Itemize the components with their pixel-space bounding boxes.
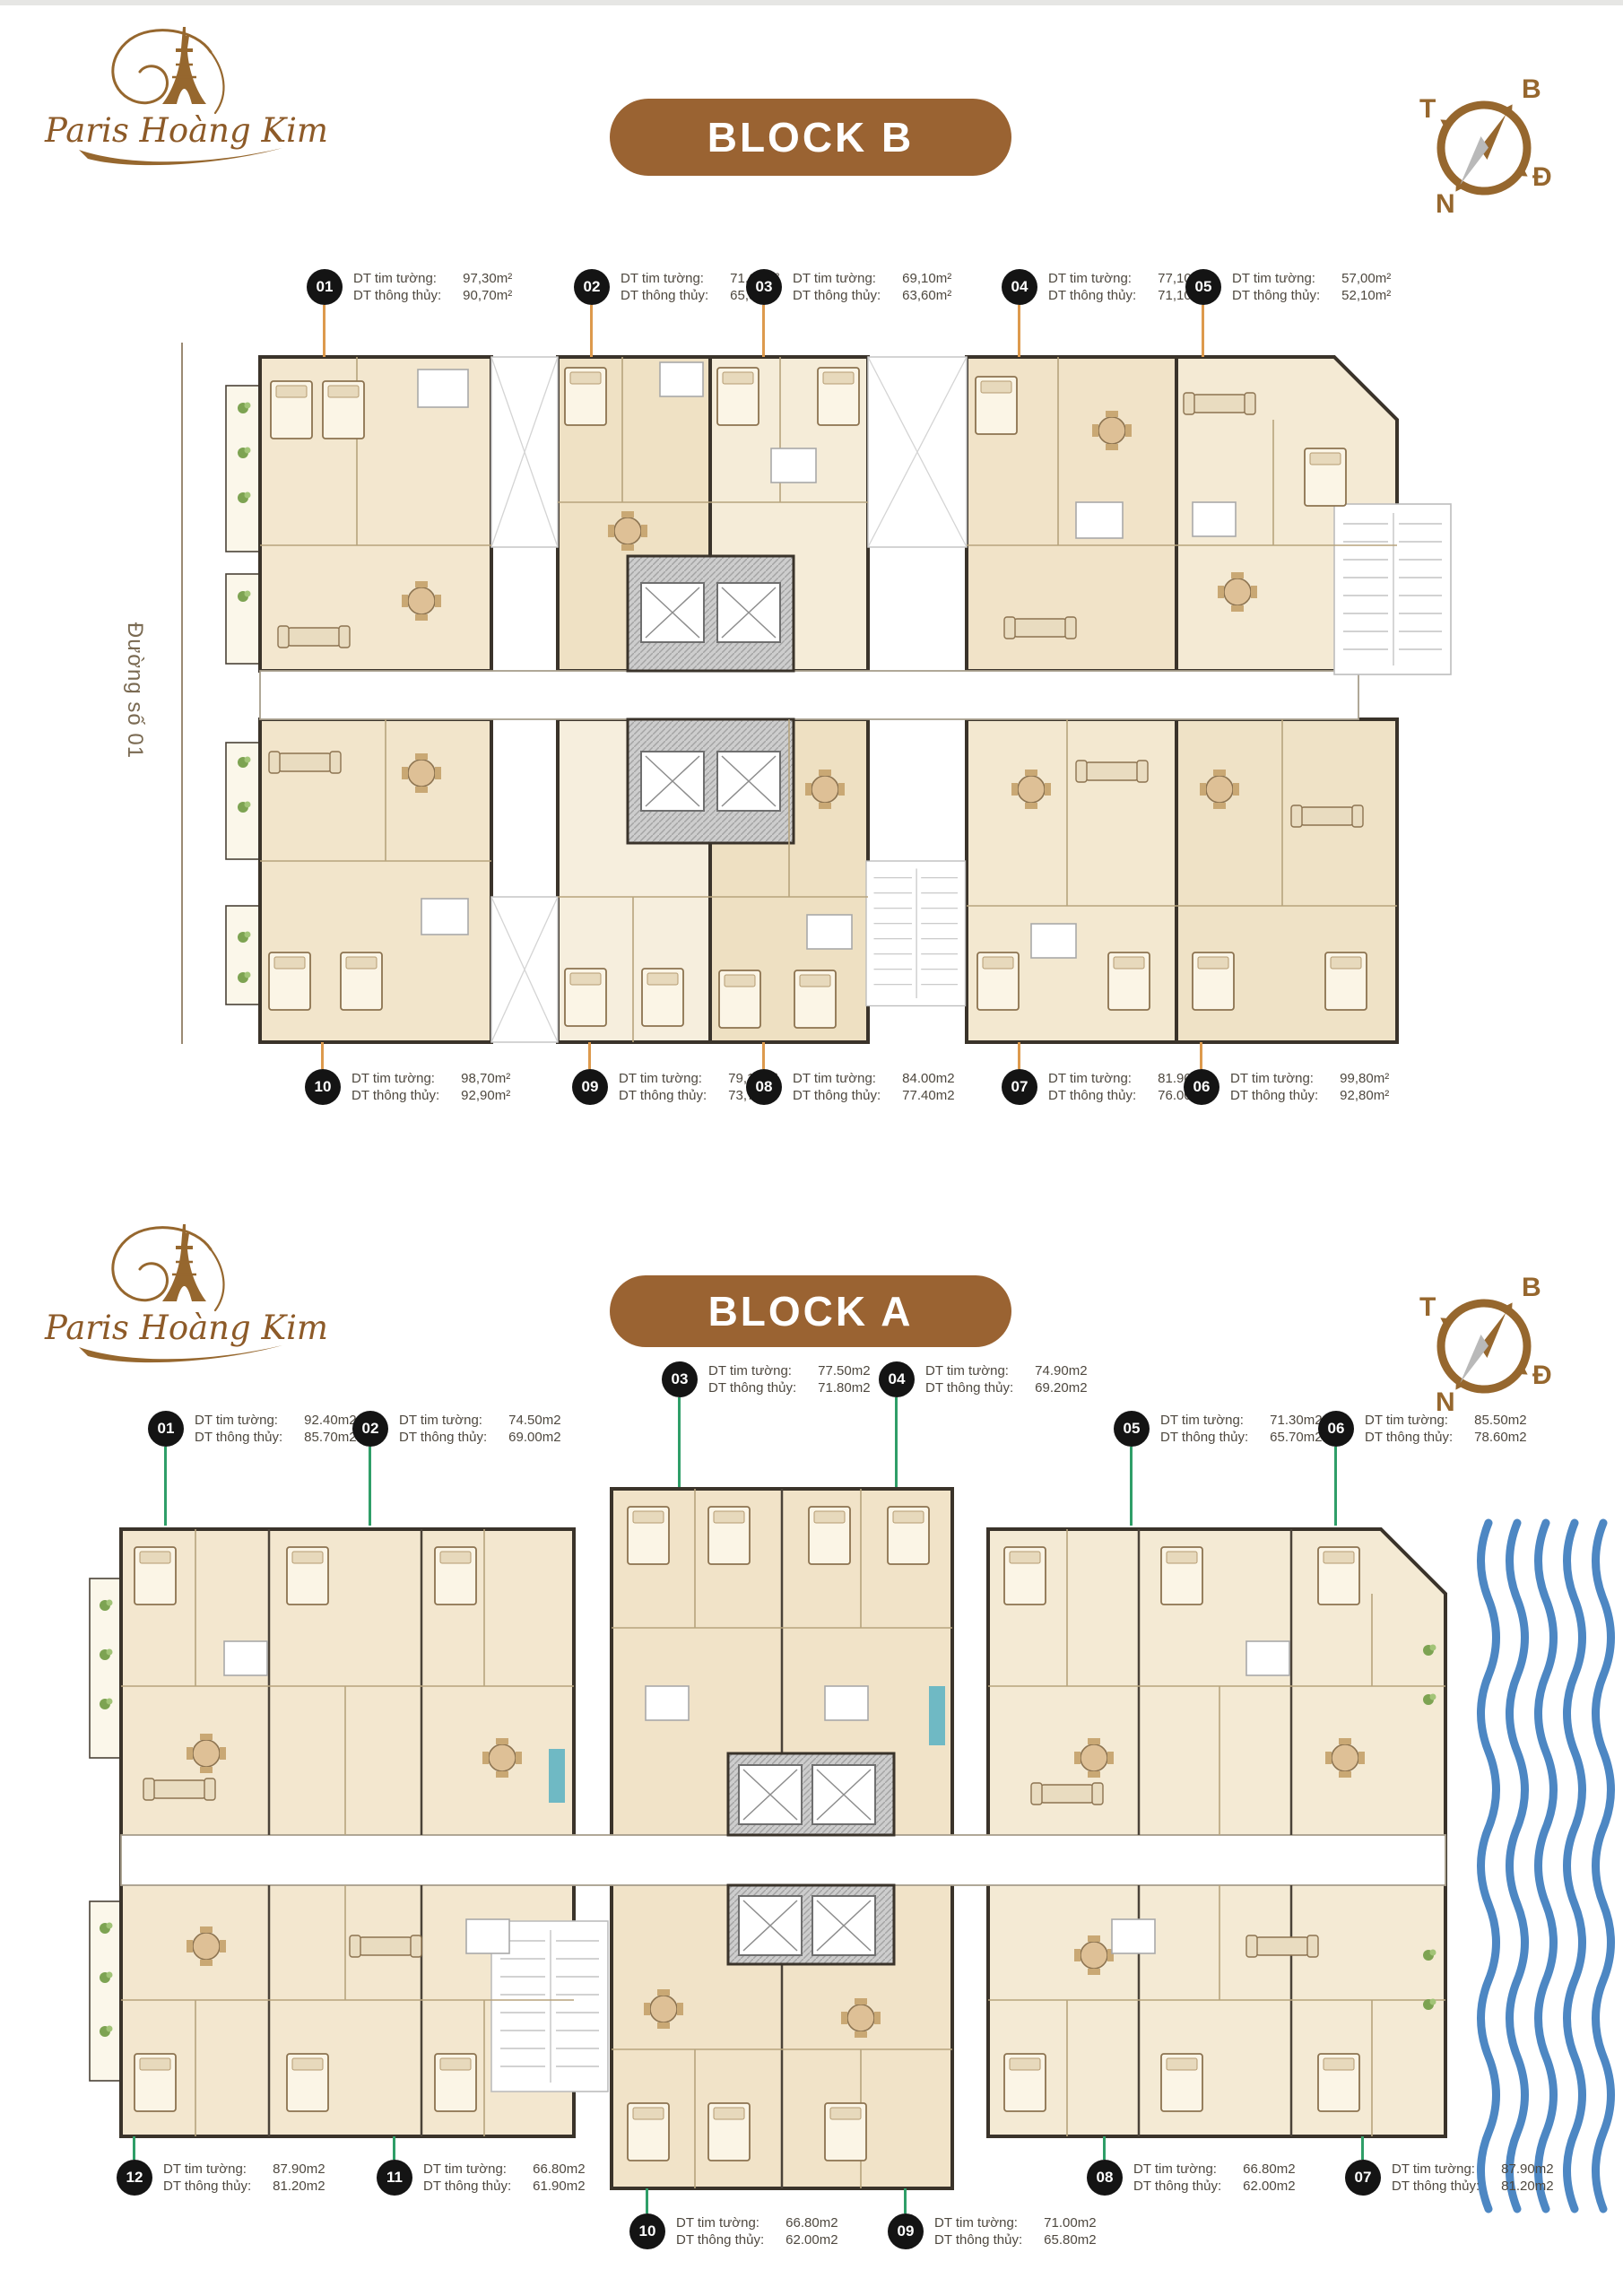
compass-south-label: N bbox=[1436, 189, 1455, 219]
river-waves bbox=[1481, 1523, 1611, 2209]
brand-logo: Paris Hoàng Kim bbox=[45, 25, 323, 166]
brand-name: Paris Hoàng Kim bbox=[45, 111, 323, 150]
compass-west-label: T bbox=[1419, 1292, 1436, 1322]
brand-name: Paris Hoàng Kim bbox=[45, 1309, 323, 1347]
compass-east-label: Đ bbox=[1532, 162, 1552, 192]
compass-icon: B T Đ N bbox=[1412, 56, 1556, 226]
compass-north-label: B bbox=[1522, 1273, 1541, 1302]
block-b-title: BLOCK B bbox=[610, 99, 1011, 176]
block-a-title: BLOCK A bbox=[610, 1275, 1011, 1347]
floorplan-graphics bbox=[0, 0, 1623, 2296]
eiffel-tower-monogram-icon bbox=[90, 25, 278, 115]
stairwell-ghost bbox=[866, 861, 966, 1006]
compass-icon: B T Đ N bbox=[1412, 1254, 1556, 1424]
stairwell-ghost bbox=[1334, 504, 1451, 674]
compass-west-label: T bbox=[1419, 94, 1436, 124]
compass-north-label: B bbox=[1522, 74, 1541, 104]
page: Paris Hoàng Kim BLOCK B B T Đ N Đường số… bbox=[0, 0, 1623, 2296]
eiffel-tower-monogram-icon bbox=[90, 1222, 278, 1312]
brand-logo: Paris Hoàng Kim bbox=[45, 1222, 323, 1363]
compass-south-label: N bbox=[1436, 1387, 1455, 1417]
block-a-plan bbox=[90, 1489, 1611, 2209]
block-b-plan bbox=[182, 343, 1451, 1044]
compass-east-label: Đ bbox=[1532, 1361, 1552, 1390]
street-label: Đường số 01 bbox=[122, 592, 147, 789]
